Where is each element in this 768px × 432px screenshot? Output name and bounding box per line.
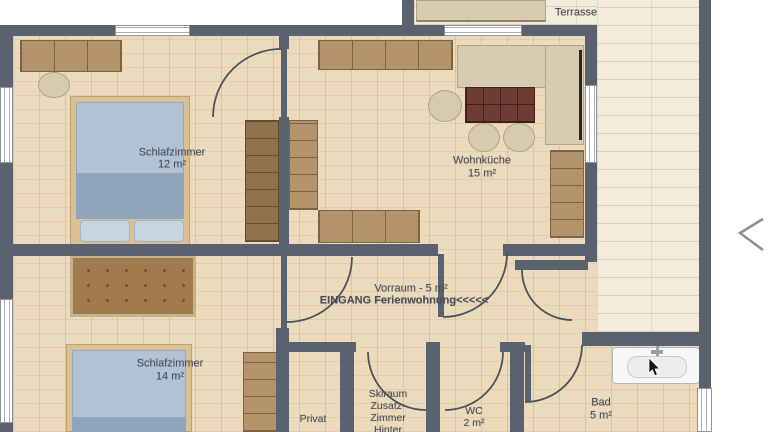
wardrobe <box>550 150 584 238</box>
room-label-wc: WC <box>465 406 483 417</box>
desk <box>20 40 122 72</box>
kitchen-cabinets <box>318 40 453 70</box>
wall-wc-right <box>510 342 524 432</box>
room-label-skiraum: Zusatz- <box>370 401 405 412</box>
room-area-schlafzimmer2: 14 m² <box>156 372 184 383</box>
terrace-deck <box>597 0 699 332</box>
chevron-left-icon[interactable] <box>740 219 763 250</box>
room-area-schlafzimmer1: 12 m² <box>158 160 186 171</box>
wall-bedroom1-kitchen <box>279 117 289 248</box>
wardrobe <box>243 352 280 432</box>
pillow <box>134 220 184 242</box>
floor-plan: Terrasse Schlafzimmer 12 m² Wohnküche 15… <box>0 0 768 432</box>
faucet-icon <box>656 346 659 356</box>
dining-chair <box>468 123 500 152</box>
room-area-wohnkueche: 15 m² <box>468 169 496 180</box>
dining-chair <box>503 123 535 152</box>
room-label-skiraum: Skiraum <box>369 389 408 400</box>
door-leaf <box>281 49 287 117</box>
dining-table <box>465 87 535 123</box>
bed-blanket-foot <box>76 174 184 219</box>
wall-middle <box>13 244 438 256</box>
wardrobe <box>245 120 279 242</box>
wall-middle <box>503 244 597 256</box>
room-label-privat: Privat <box>300 414 327 425</box>
bathroom-sink <box>612 347 700 384</box>
wall-terrace-stub <box>402 0 414 25</box>
wall-privat-skiraum <box>340 342 354 432</box>
wardrobe <box>289 120 318 210</box>
wall-bath-top <box>582 332 707 346</box>
room-label-terrasse: Terrasse <box>555 8 597 19</box>
kitchen-cabinets <box>318 210 420 243</box>
window <box>115 25 190 36</box>
window <box>0 87 13 163</box>
room-label-bad: Bad <box>591 398 611 409</box>
dining-chair <box>428 90 462 122</box>
tufted-sofa <box>70 255 196 317</box>
pillow <box>80 220 130 242</box>
room-label-skiraum: Hinter <box>374 425 402 432</box>
room-label-schlafzimmer2: Schlafzimmer <box>137 359 204 370</box>
wall-terrace-door <box>515 260 588 270</box>
room-area-wc: 2 m² <box>464 418 485 429</box>
chair <box>38 72 70 98</box>
window <box>585 85 597 163</box>
wall-skiraum-wc <box>426 342 440 432</box>
sink-basin <box>627 356 687 378</box>
door-leaf <box>525 345 531 402</box>
door-leaf-entrance <box>281 256 287 328</box>
room-label-vorraum: Vorraum - 5 m² <box>374 284 447 295</box>
room-label-skiraum: Zimmer <box>370 413 406 424</box>
window <box>697 388 712 432</box>
entrance-label: EINGANG Ferienwohnung<<<<< <box>320 296 488 307</box>
window <box>444 25 522 36</box>
wall-bedroom1-kitchen <box>279 36 289 49</box>
room-label-wohnkueche: Wohnküche <box>453 156 511 167</box>
room-area-bad: 5 m² <box>590 411 612 422</box>
window <box>0 299 13 423</box>
room-label-schlafzimmer1: Schlafzimmer <box>139 148 206 159</box>
bed-blanket-foot <box>72 418 186 432</box>
wall-wc-top <box>500 342 525 352</box>
terrace-couch <box>416 0 546 22</box>
sofa-edge <box>579 50 582 140</box>
